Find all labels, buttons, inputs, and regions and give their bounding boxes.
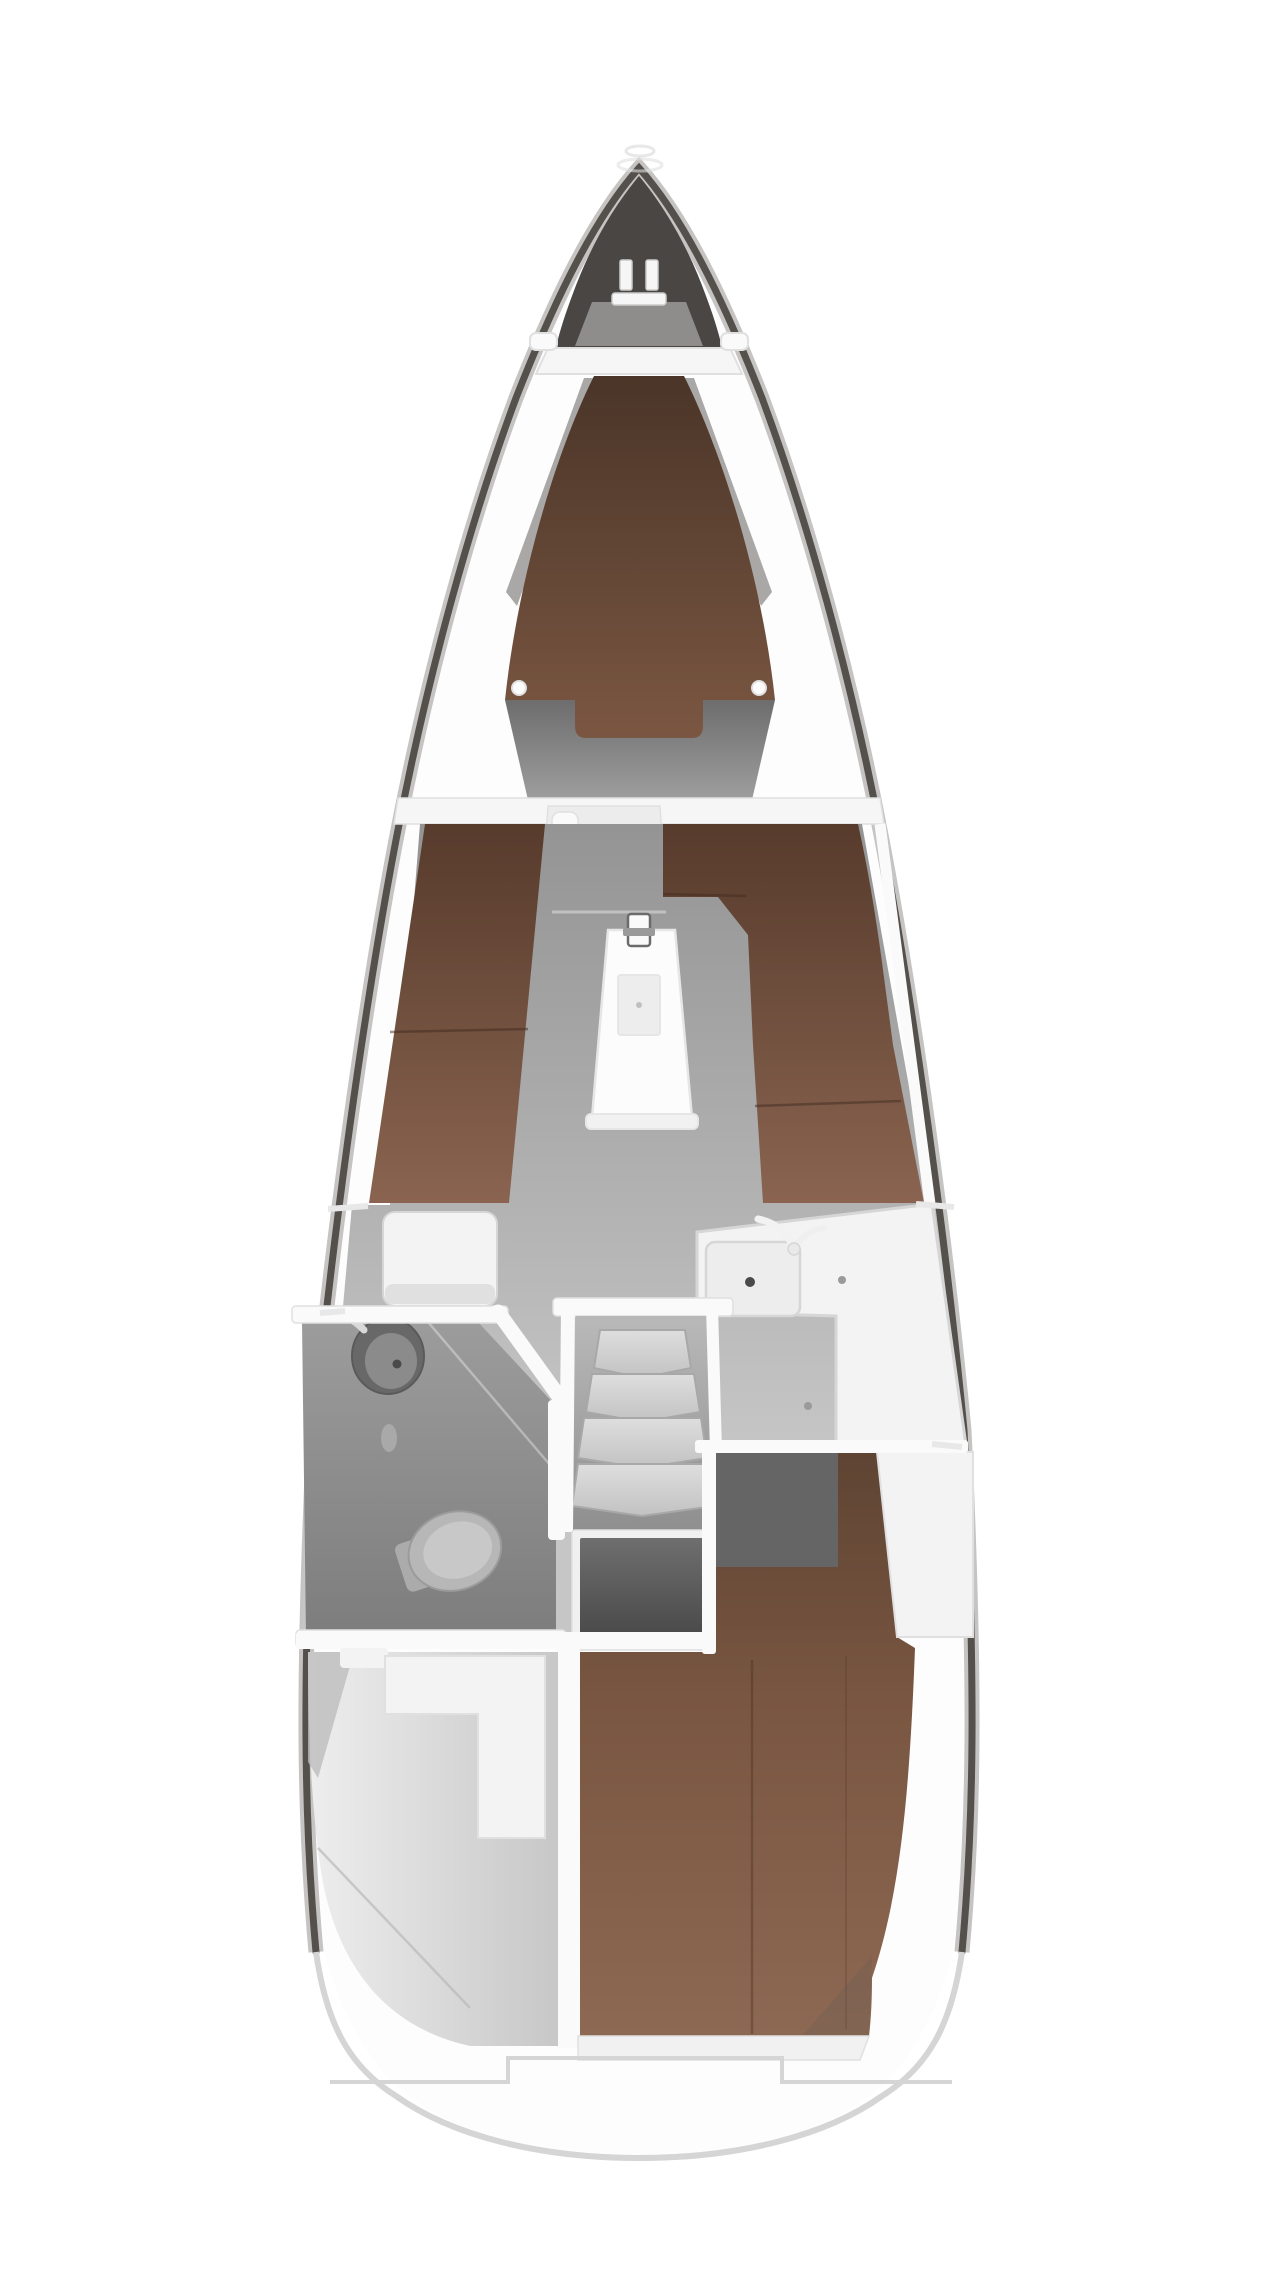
bow-cleat-left xyxy=(530,333,557,350)
companionway-wall-right xyxy=(712,1306,716,1452)
anchor-locker-lid xyxy=(575,302,703,346)
engine-box xyxy=(580,1538,706,1642)
vberth-window-right xyxy=(752,681,766,695)
nav-seat-shade xyxy=(385,1284,495,1304)
foredeck-band xyxy=(536,348,742,374)
corridor-wall-left xyxy=(702,1446,716,1654)
galley-aft-wall-band xyxy=(695,1440,968,1453)
aft-corridor-floor xyxy=(716,1452,838,1567)
bow-fitting-mark xyxy=(626,146,654,156)
head-sink-inner xyxy=(365,1333,417,1389)
companionway-wall-left xyxy=(566,1306,568,1532)
step-tread-2 xyxy=(586,1374,700,1422)
step-tread-3 xyxy=(578,1418,707,1468)
head-sink-drain xyxy=(393,1360,402,1369)
mast-post-collar xyxy=(623,928,655,936)
saloon-table-foot xyxy=(586,1114,698,1129)
windlass-post-left xyxy=(620,260,632,290)
head-floor xyxy=(302,1322,556,1636)
deck-line-port-1 xyxy=(328,1206,368,1209)
deck-line-starboard-2 xyxy=(932,1444,962,1447)
galley-fitting-dot2 xyxy=(804,1402,812,1410)
deck-line-starboard-1 xyxy=(916,1204,954,1207)
step-tread-4 xyxy=(572,1464,714,1516)
windlass-post-right xyxy=(646,260,658,290)
galley-sink-drain xyxy=(745,1277,755,1287)
step-tread-1 xyxy=(594,1330,691,1378)
galley-fitting-dot xyxy=(838,1276,846,1284)
galley-faucet-base xyxy=(788,1243,800,1255)
table-leaf-latch xyxy=(636,1002,642,1008)
wet-locker-tab xyxy=(340,1648,388,1668)
aft-cabin-wall-left xyxy=(556,1646,580,2048)
aft-cabin-wall-fore xyxy=(296,1632,716,1649)
deck-line-port-2 xyxy=(320,1311,345,1313)
yacht-floor-plan xyxy=(0,0,1280,2276)
companionway-sill xyxy=(553,1298,733,1316)
windlass-base xyxy=(612,293,666,305)
yacht-floor-plan-page xyxy=(0,0,1280,2276)
vberth-window-left xyxy=(512,681,526,695)
bow-cleat-right xyxy=(721,333,748,350)
head-shelf-oval xyxy=(381,1424,397,1452)
